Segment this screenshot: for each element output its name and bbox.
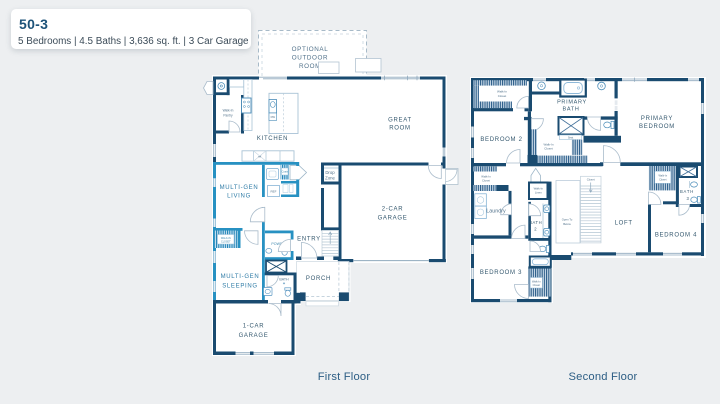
svg-text:GARAGE: GARAGE bbox=[239, 333, 269, 339]
svg-text:3: 3 bbox=[686, 196, 689, 201]
svg-text:PRIMARY: PRIMARY bbox=[641, 116, 673, 122]
svg-text:Below: Below bbox=[563, 222, 572, 226]
svg-text:Walk-In: Walk-In bbox=[497, 90, 507, 94]
svg-text:Linen: Linen bbox=[535, 191, 542, 195]
svg-text:GARAGE: GARAGE bbox=[378, 216, 408, 222]
svg-text:Seat: Seat bbox=[568, 136, 574, 140]
svg-text:Coats: Coats bbox=[282, 171, 289, 174]
svg-text:Walk-In: Walk-In bbox=[223, 109, 234, 113]
svg-text:Drop: Drop bbox=[325, 170, 335, 175]
svg-text:Walk-In: Walk-In bbox=[658, 174, 667, 178]
svg-text:2: 2 bbox=[534, 227, 537, 232]
svg-text:BATH: BATH bbox=[529, 220, 542, 225]
svg-text:BEDROOM 2: BEDROOM 2 bbox=[480, 137, 522, 143]
svg-text:DW: DW bbox=[271, 115, 276, 119]
svg-text:Closet: Closet bbox=[587, 178, 595, 182]
svg-text:First Floor: First Floor bbox=[318, 371, 371, 383]
svg-text:KITCHEN: KITCHEN bbox=[257, 136, 288, 142]
svg-text:LIVING: LIVING bbox=[227, 194, 251, 200]
svg-text:SLEEPING: SLEEPING bbox=[222, 284, 258, 290]
svg-text:Second Floor: Second Floor bbox=[569, 371, 638, 383]
svg-text:BEDROOM 4: BEDROOM 4 bbox=[655, 233, 697, 239]
svg-text:MULTI-GEN: MULTI-GEN bbox=[221, 274, 260, 280]
svg-text:Laundry: Laundry bbox=[486, 209, 506, 215]
svg-text:Closet: Closet bbox=[533, 283, 541, 287]
svg-text:Closet: Closet bbox=[498, 94, 507, 98]
svg-text:ROOM: ROOM bbox=[299, 63, 321, 70]
svg-text:Closet: Closet bbox=[659, 177, 667, 181]
svg-text:REF: REF bbox=[271, 189, 277, 193]
svg-text:BATH: BATH bbox=[680, 189, 694, 194]
svg-text:GREAT: GREAT bbox=[388, 118, 412, 124]
svg-text:CLOSET: CLOSET bbox=[221, 240, 231, 243]
svg-text:Zone: Zone bbox=[325, 176, 335, 181]
svg-text:PORCH: PORCH bbox=[306, 276, 331, 282]
svg-text:1-CAR: 1-CAR bbox=[243, 324, 265, 330]
svg-text:Walk-In: Walk-In bbox=[532, 279, 541, 283]
svg-text:BEDROOM 3: BEDROOM 3 bbox=[480, 270, 522, 276]
svg-text:Pantry: Pantry bbox=[223, 114, 233, 118]
svg-text:LOFT: LOFT bbox=[615, 221, 633, 227]
svg-text:2-CAR: 2-CAR bbox=[382, 207, 404, 213]
svg-text:MULTI-GEN: MULTI-GEN bbox=[220, 185, 259, 191]
svg-text:BATH: BATH bbox=[562, 107, 579, 113]
svg-text:BATH: BATH bbox=[279, 278, 289, 282]
svg-text:ENTRY: ENTRY bbox=[297, 237, 321, 243]
svg-text:BEDROOM: BEDROOM bbox=[639, 124, 675, 130]
svg-text:OPTIONAL: OPTIONAL bbox=[292, 46, 329, 53]
svg-text:Closet: Closet bbox=[482, 179, 490, 183]
svg-text:OUTDOOR: OUTDOOR bbox=[292, 55, 328, 62]
svg-text:PRIMARY: PRIMARY bbox=[557, 100, 587, 106]
svg-text:Closet: Closet bbox=[544, 147, 553, 151]
svg-text:ROOM: ROOM bbox=[389, 126, 410, 132]
svg-text:ref: ref bbox=[258, 154, 261, 158]
